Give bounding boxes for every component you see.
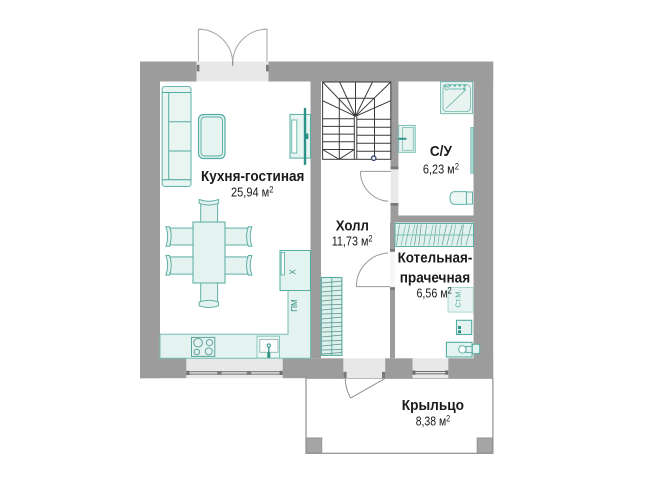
svg-text:Котельная-: Котельная- [398,251,473,267]
svg-text:6,56 м2: 6,56 м2 [417,285,452,300]
svg-text:X: X [289,269,298,275]
svg-text:ПМ: ПМ [290,299,299,312]
svg-text:25,94 м2: 25,94 м2 [231,185,274,200]
svg-text:6,23 м2: 6,23 м2 [423,161,459,176]
svg-text:прачечная: прачечная [400,270,471,286]
svg-text:Крыльцо: Крыльцо [402,398,464,414]
svg-text:Ст.М.: Ст.М. [453,290,462,308]
svg-text:С/У: С/У [430,144,453,160]
svg-text:8,38 м2: 8,38 м2 [416,413,451,428]
svg-text:Холл: Холл [336,219,369,235]
svg-text:11,73 м2: 11,73 м2 [332,234,373,249]
svg-text:Кухня-гостиная: Кухня-гостиная [201,169,304,185]
